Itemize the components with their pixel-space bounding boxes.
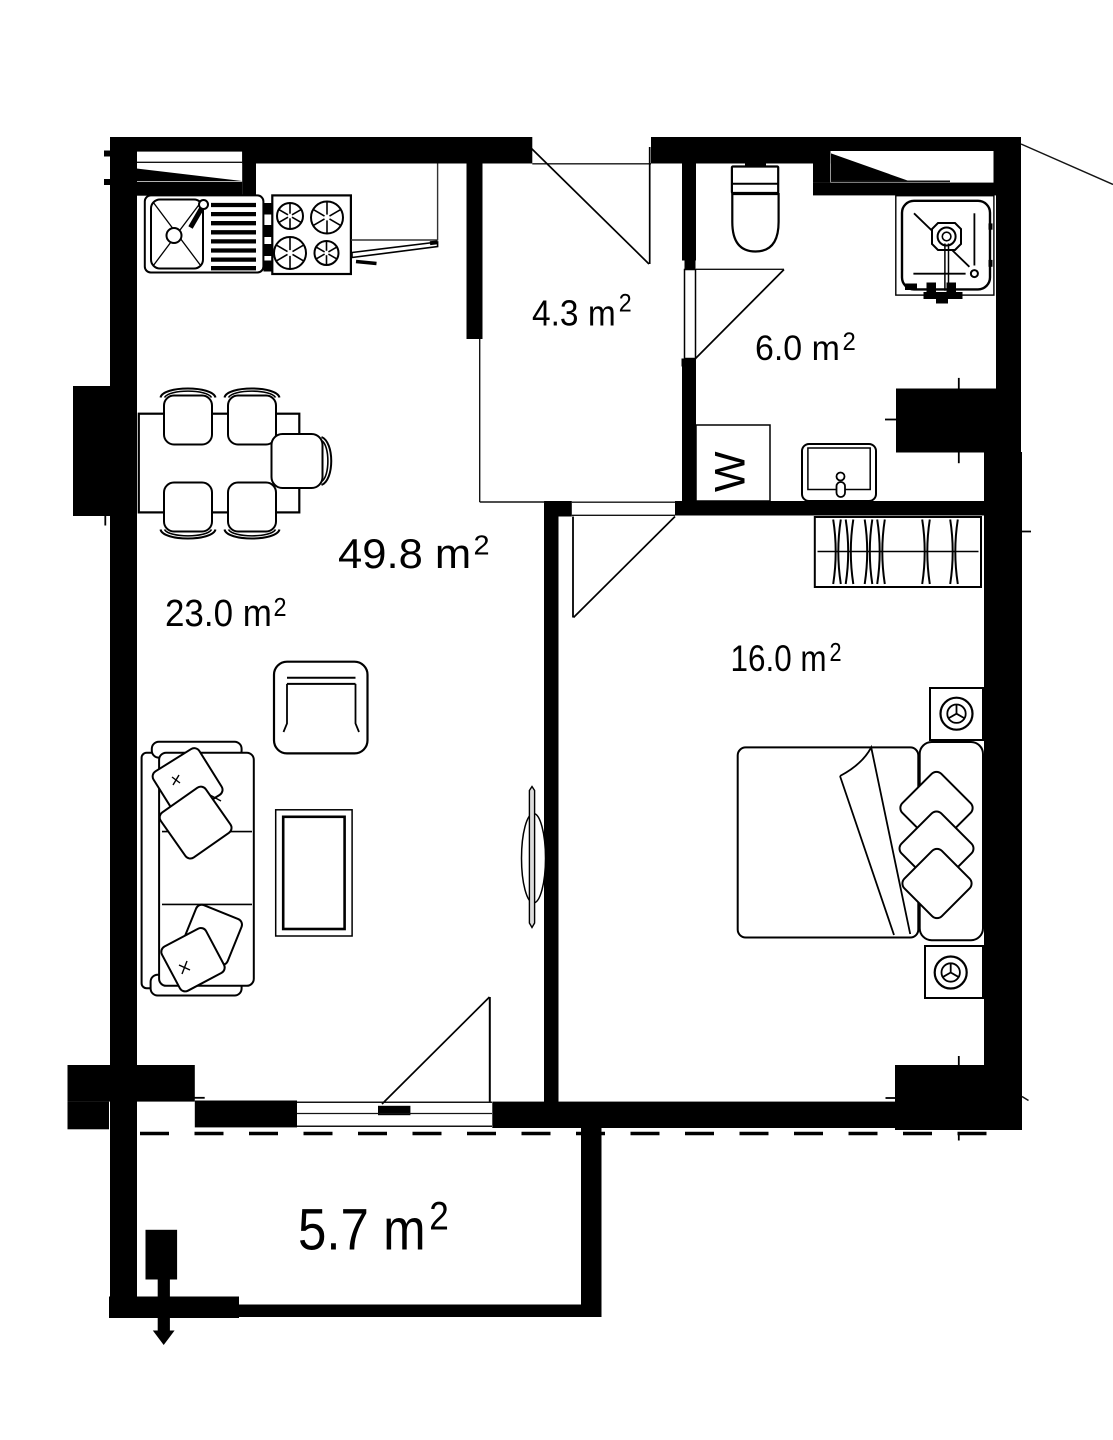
svg-text:16.0 m: 16.0 m	[731, 639, 827, 680]
svg-text:5.7 m: 5.7 m	[298, 1197, 426, 1262]
svg-text:4.3 m: 4.3 m	[532, 294, 616, 333]
svg-text:2: 2	[619, 290, 632, 318]
svg-text:49.8 m: 49.8 m	[338, 531, 471, 578]
svg-text:2: 2	[474, 529, 490, 560]
svg-text:23.0 m: 23.0 m	[165, 592, 272, 635]
svg-text:2: 2	[429, 1193, 449, 1238]
svg-text:6.0 m: 6.0 m	[755, 330, 840, 369]
svg-text:2: 2	[842, 328, 855, 356]
svg-text:W: W	[707, 451, 755, 492]
svg-text:2: 2	[830, 639, 842, 667]
svg-text:2: 2	[274, 594, 287, 622]
